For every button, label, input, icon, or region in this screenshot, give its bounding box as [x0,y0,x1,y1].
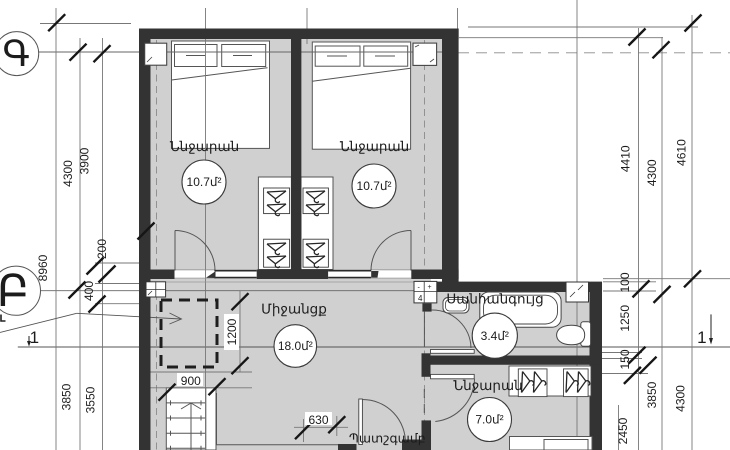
svg-text:3.4մ²: 3.4մ² [481,329,509,343]
svg-text:18.0մ²: 18.0մ² [278,339,313,353]
svg-text:4610: 4610 [674,139,688,166]
svg-text:Պատշգամբ: Պատշգամբ [349,432,426,446]
svg-text:4300: 4300 [674,385,688,412]
svg-text:200: 200 [95,239,109,259]
svg-text:1200: 1200 [225,318,239,345]
svg-text:100: 100 [618,272,632,292]
svg-text:8960: 8960 [36,254,50,281]
svg-text:Բ: Բ [0,267,29,316]
svg-text:Միջանցք: Միջանցք [261,302,327,317]
svg-text:3550: 3550 [84,386,98,413]
svg-text:3850: 3850 [59,383,73,410]
svg-text:Ննջարան: Ննջարան [453,378,522,393]
svg-text:150: 150 [618,349,632,369]
svg-text:1: 1 [697,328,706,347]
svg-text:900: 900 [181,374,201,388]
svg-text:400: 400 [82,281,96,301]
svg-text:630: 630 [308,413,328,427]
svg-text:10.7մ²: 10.7մ² [357,179,392,193]
svg-text:Գ: Գ [2,33,29,74]
svg-text:Ննջարան: Ննջարան [340,139,409,154]
svg-text:4410: 4410 [619,145,633,172]
svg-text:4300: 4300 [645,159,659,186]
svg-text:Ննջարան: Ննջարան [170,139,239,154]
svg-text:4300: 4300 [61,160,75,187]
svg-text:3850: 3850 [645,381,659,408]
svg-text:7.0մ²: 7.0մ² [475,413,503,427]
svg-text:1250: 1250 [618,305,632,332]
svg-text:3900: 3900 [77,147,91,174]
svg-text:10.7մ²: 10.7մ² [187,175,222,189]
svg-text:+: + [428,284,432,291]
svg-text:4: 4 [418,294,423,303]
svg-text:2450: 2450 [616,417,630,444]
svg-text:Սանհանգույց: Սանհանգույց [446,292,543,307]
svg-text:1: 1 [30,328,39,347]
